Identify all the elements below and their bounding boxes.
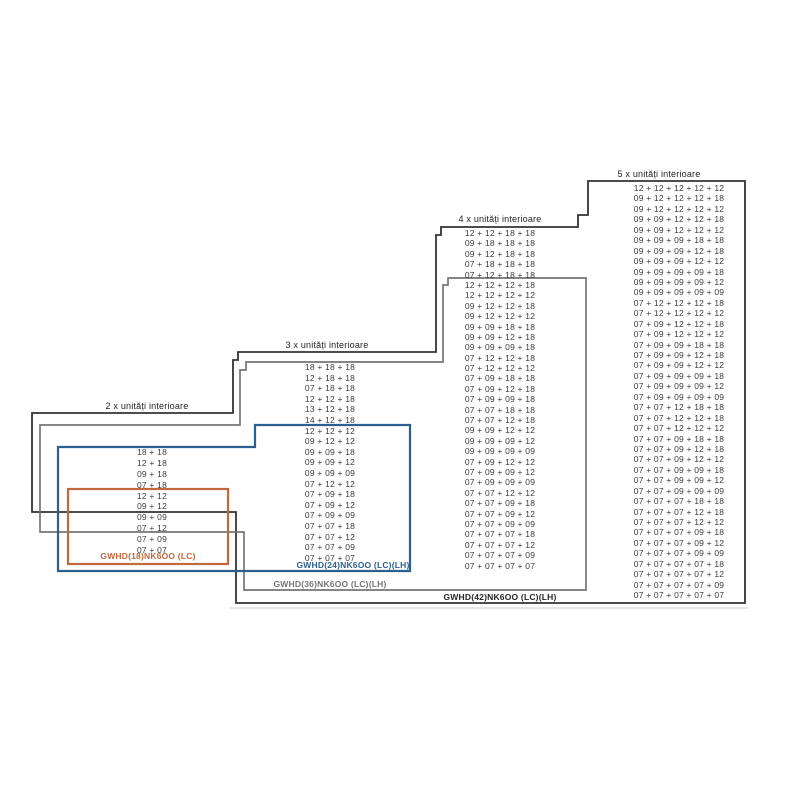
combination-row: 07 + 09 + 12 + 12 + 18 bbox=[614, 319, 744, 329]
combination-row: 12 + 18 bbox=[117, 458, 187, 469]
combination-row: 09 + 09 + 18 + 18 bbox=[445, 322, 555, 332]
hvac-combination-diagram: 2 x unități interioare 3 x unități inter… bbox=[0, 0, 800, 800]
combination-row: 07 + 12 bbox=[117, 523, 187, 534]
combination-row: 07 + 12 + 12 + 12 + 18 bbox=[614, 298, 744, 308]
combination-row: 07 + 12 + 12 + 18 bbox=[445, 353, 555, 363]
combination-row: 07 + 07 + 09 + 12 + 12 bbox=[614, 454, 744, 464]
header-3x-indoor-units: 3 x unități interioare bbox=[262, 340, 392, 350]
combination-row: 09 + 09 + 09 + 18 + 18 bbox=[614, 235, 744, 245]
header-5x-indoor-units: 5 x unități interioare bbox=[594, 169, 724, 179]
combination-row: 07 + 07 + 18 bbox=[285, 521, 375, 532]
combination-row: 07 + 09 + 09 + 09 + 12 bbox=[614, 381, 744, 391]
combination-row: 07 + 07 + 09 + 09 + 12 bbox=[614, 475, 744, 485]
column-2x-combinations: 18 + 1812 + 1809 + 1807 + 1812 + 1209 + … bbox=[117, 447, 187, 556]
gwhd42-model-label: GWHD(42)NK6OO (LC)(LH) bbox=[425, 592, 575, 602]
combination-row: 09 + 09 bbox=[117, 512, 187, 523]
combination-row: 07 + 07 + 07 + 12 bbox=[445, 540, 555, 550]
combination-row: 07 + 07 + 12 + 18 bbox=[445, 415, 555, 425]
combination-row: 09 + 12 + 12 bbox=[285, 436, 375, 447]
combination-row: 14 + 12 + 18 bbox=[285, 415, 375, 426]
combination-row: 09 + 18 bbox=[117, 469, 187, 480]
combination-row: 09 + 12 bbox=[117, 501, 187, 512]
combination-row: 07 + 07 + 09 + 12 bbox=[445, 509, 555, 519]
combination-row: 07 + 07 + 12 + 12 + 12 bbox=[614, 423, 744, 433]
combination-row: 09 + 09 + 09 + 18 bbox=[445, 342, 555, 352]
combination-row: 18 + 18 bbox=[117, 447, 187, 458]
combination-row: 07 + 09 + 09 + 09 bbox=[445, 477, 555, 487]
combination-row: 09 + 09 + 09 bbox=[285, 468, 375, 479]
combination-row: 07 + 09 + 18 + 18 bbox=[445, 373, 555, 383]
combination-row: 07 + 07 + 07 + 12 + 12 bbox=[614, 517, 744, 527]
combination-row: 18 + 18 + 18 bbox=[285, 362, 375, 373]
combination-row: 12 + 12 + 18 bbox=[285, 394, 375, 405]
combination-row: 07 + 07 + 07 + 07 + 18 bbox=[614, 559, 744, 569]
combination-row: 09 + 12 + 18 + 18 bbox=[445, 249, 555, 259]
combination-row: 12 + 12 + 18 + 18 bbox=[445, 228, 555, 238]
combination-row: 07 + 07 + 07 + 07 bbox=[445, 561, 555, 571]
combination-row: 09 + 09 + 09 + 09 bbox=[445, 446, 555, 456]
combination-row: 07 + 12 + 12 + 12 bbox=[445, 363, 555, 373]
combination-row: 09 + 09 + 12 bbox=[285, 457, 375, 468]
combination-row: 07 + 12 + 18 + 18 bbox=[445, 270, 555, 280]
combination-row: 07 + 07 + 12 + 18 + 18 bbox=[614, 402, 744, 412]
combination-row: 09 + 09 + 12 + 18 bbox=[445, 332, 555, 342]
combination-row: 07 + 18 + 18 + 18 bbox=[445, 259, 555, 269]
combination-row: 09 + 09 + 12 + 12 + 18 bbox=[614, 214, 744, 224]
gwhd24-model-label: GWHD(24)NK6OO (LC)(LH) bbox=[278, 560, 428, 570]
combination-row: 07 + 09 + 09 + 18 + 18 bbox=[614, 340, 744, 350]
combination-row: 07 + 07 + 09 + 09 + 09 bbox=[614, 486, 744, 496]
combination-row: 09 + 12 + 12 + 12 + 18 bbox=[614, 193, 744, 203]
combination-row: 09 + 09 + 09 + 09 + 12 bbox=[614, 277, 744, 287]
combination-row: 07 + 07 + 09 + 18 + 18 bbox=[614, 434, 744, 444]
combination-row: 07 + 07 + 18 + 18 bbox=[445, 405, 555, 415]
combination-row: 07 + 07 + 07 + 09 + 09 bbox=[614, 548, 744, 558]
combination-row: 09 + 09 + 09 + 12 + 18 bbox=[614, 246, 744, 256]
column-3x-combinations: 18 + 18 + 1812 + 18 + 1807 + 18 + 1812 +… bbox=[285, 362, 375, 563]
combination-row: 07 + 18 bbox=[117, 480, 187, 491]
combination-row: 13 + 12 + 18 bbox=[285, 404, 375, 415]
combination-row: 09 + 09 + 18 bbox=[285, 447, 375, 458]
combination-row: 07 + 07 + 07 + 18 bbox=[445, 529, 555, 539]
combination-row: 07 + 07 + 09 + 09 + 18 bbox=[614, 465, 744, 475]
combination-row: 09 + 09 + 12 + 12 bbox=[445, 425, 555, 435]
combination-row: 12 + 12 + 12 + 12 bbox=[445, 290, 555, 300]
combination-row: 07 + 09 + 09 + 12 + 18 bbox=[614, 350, 744, 360]
combination-row: 09 + 18 + 18 + 18 bbox=[445, 238, 555, 248]
combination-row: 12 + 18 + 18 bbox=[285, 373, 375, 384]
combination-row: 07 + 09 + 18 bbox=[285, 489, 375, 500]
combination-row: 07 + 09 + 09 + 09 + 09 bbox=[614, 392, 744, 402]
combination-row: 07 + 07 + 09 + 12 + 18 bbox=[614, 444, 744, 454]
combination-row: 09 + 12 + 12 + 12 bbox=[445, 311, 555, 321]
combination-row: 07 + 07 + 07 + 07 + 12 bbox=[614, 569, 744, 579]
combination-row: 07 + 09 + 09 + 18 bbox=[445, 394, 555, 404]
combination-row: 07 + 18 + 18 bbox=[285, 383, 375, 394]
combination-row: 07 + 12 + 12 + 12 + 12 bbox=[614, 308, 744, 318]
header-2x-indoor-units: 2 x unități interioare bbox=[82, 401, 212, 411]
combination-row: 07 + 07 + 07 + 09 + 18 bbox=[614, 527, 744, 537]
combination-row: 09 + 09 + 12 + 12 + 12 bbox=[614, 225, 744, 235]
combination-row: 12 + 12 + 12 bbox=[285, 426, 375, 437]
header-4x-indoor-units: 4 x unități interioare bbox=[435, 214, 565, 224]
combination-row: 09 + 12 + 12 + 18 bbox=[445, 301, 555, 311]
combination-row: 07 + 09 + 12 + 12 + 12 bbox=[614, 329, 744, 339]
combination-row: 09 + 09 + 09 + 09 + 09 bbox=[614, 287, 744, 297]
combination-row: 07 + 07 + 12 + 12 + 18 bbox=[614, 413, 744, 423]
gwhd36-model-label: GWHD(36)NK6OO (LC)(LH) bbox=[255, 579, 405, 589]
combination-row: 07 + 07 + 12 bbox=[285, 532, 375, 543]
combination-row: 07 + 12 + 12 bbox=[285, 479, 375, 490]
combination-row: 07 + 09 + 09 + 12 + 12 bbox=[614, 360, 744, 370]
combination-row: 07 + 07 + 09 + 09 bbox=[445, 519, 555, 529]
combination-row: 12 + 12 + 12 + 18 bbox=[445, 280, 555, 290]
combination-row: 07 + 07 + 07 + 07 + 07 bbox=[614, 590, 744, 600]
combination-row: 07 + 09 + 09 bbox=[285, 510, 375, 521]
combination-row: 07 + 07 + 07 + 12 + 18 bbox=[614, 507, 744, 517]
combination-row: 09 + 09 + 09 + 09 + 18 bbox=[614, 267, 744, 277]
combination-row: 09 + 12 + 12 + 12 + 12 bbox=[614, 204, 744, 214]
combination-row: 07 + 09 bbox=[117, 534, 187, 545]
combination-row: 12 + 12 bbox=[117, 491, 187, 502]
gwhd18-model-label: GWHD(18)NK6OO (LC) bbox=[68, 551, 228, 561]
combination-row: 07 + 07 + 07 + 18 + 18 bbox=[614, 496, 744, 506]
combination-row: 07 + 09 + 09 + 09 + 18 bbox=[614, 371, 744, 381]
combination-row: 09 + 09 + 09 + 12 bbox=[445, 436, 555, 446]
combination-row: 07 + 07 + 07 + 09 bbox=[445, 550, 555, 560]
combination-row: 07 + 09 + 12 + 18 bbox=[445, 384, 555, 394]
combination-row: 12 + 12 + 12 + 12 + 12 bbox=[614, 183, 744, 193]
column-4x-combinations: 12 + 12 + 18 + 1809 + 18 + 18 + 1809 + 1… bbox=[445, 228, 555, 571]
combination-row: 07 + 09 + 12 bbox=[285, 500, 375, 511]
combination-row: 07 + 07 + 07 + 09 + 12 bbox=[614, 538, 744, 548]
combination-row: 07 + 07 + 09 + 18 bbox=[445, 498, 555, 508]
combination-row: 09 + 09 + 09 + 12 + 12 bbox=[614, 256, 744, 266]
combination-row: 07 + 07 + 07 + 07 + 09 bbox=[614, 580, 744, 590]
combination-row: 07 + 09 + 09 + 12 bbox=[445, 467, 555, 477]
combination-row: 07 + 07 + 09 bbox=[285, 542, 375, 553]
column-5x-combinations: 12 + 12 + 12 + 12 + 1209 + 12 + 12 + 12 … bbox=[614, 183, 744, 601]
combination-row: 07 + 09 + 12 + 12 bbox=[445, 457, 555, 467]
combination-row: 07 + 07 + 12 + 12 bbox=[445, 488, 555, 498]
